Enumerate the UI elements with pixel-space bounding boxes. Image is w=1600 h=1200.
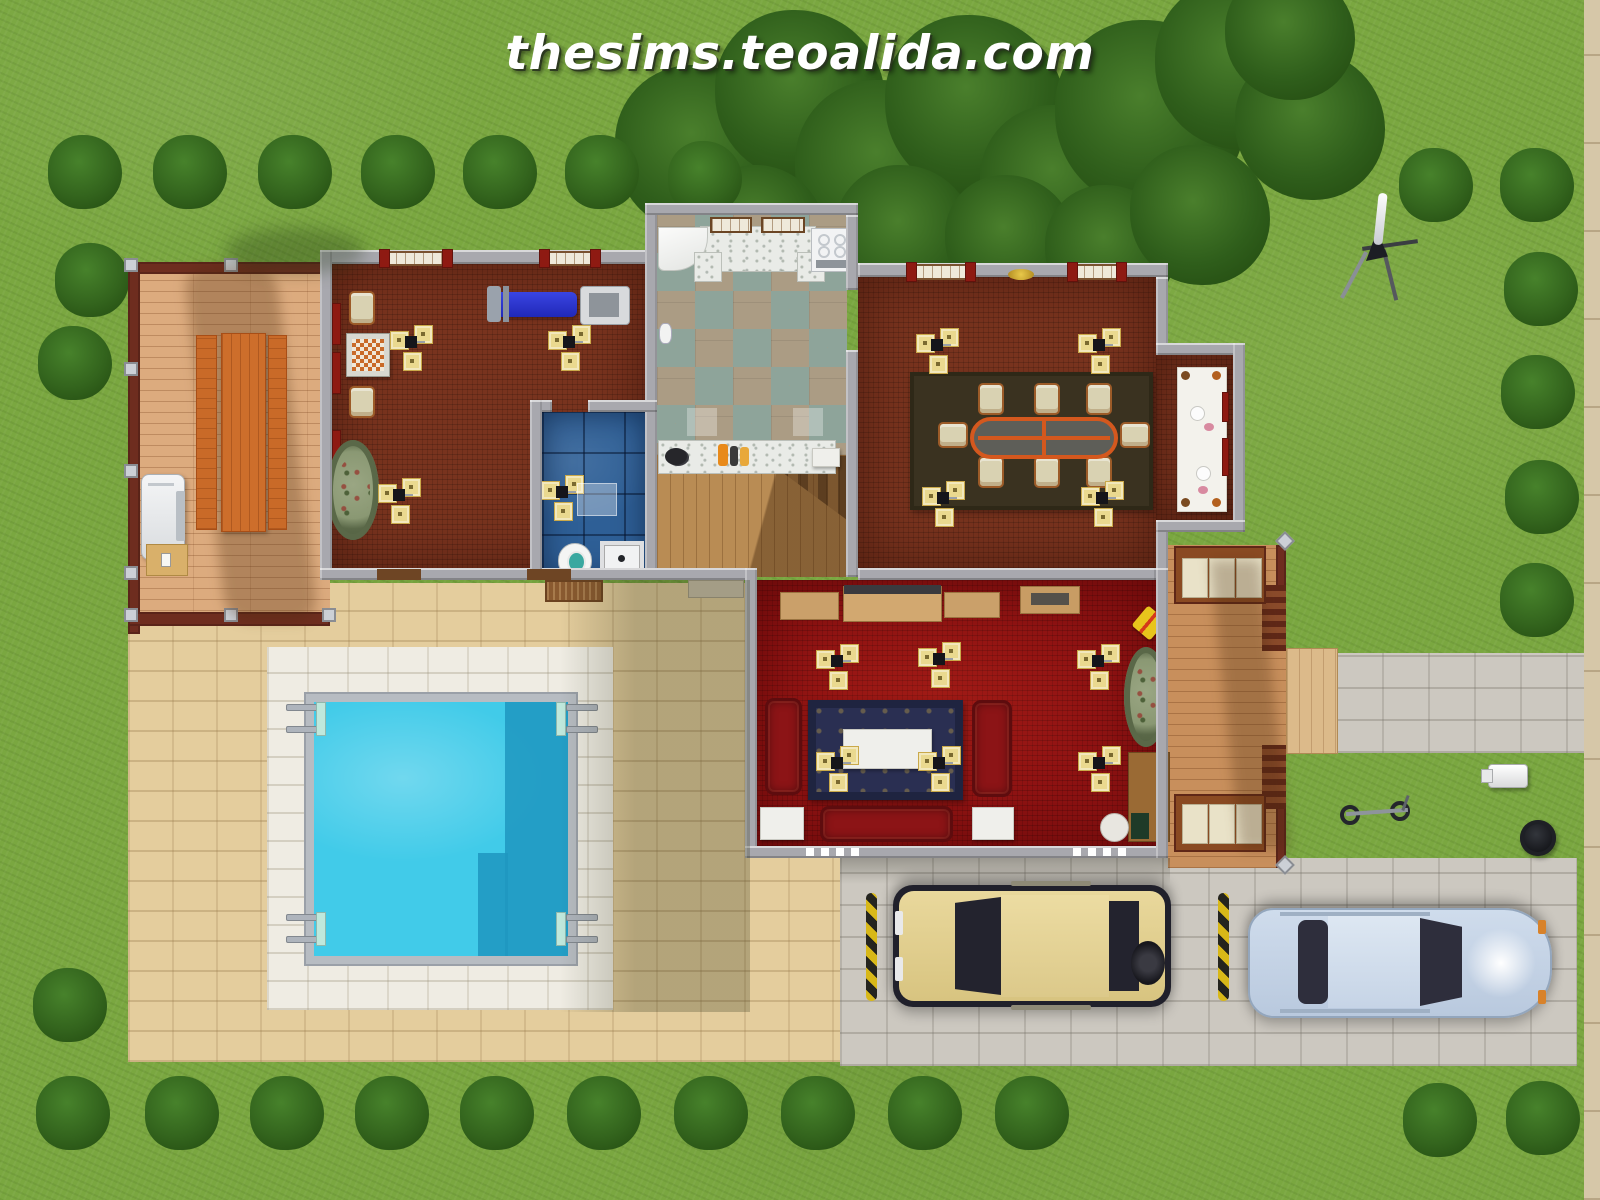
sofa[interactable]	[820, 806, 953, 842]
end-table[interactable]	[972, 807, 1014, 840]
curtain	[379, 249, 390, 268]
grill-side-table[interactable]	[146, 544, 188, 576]
deck-post-cap	[124, 258, 138, 272]
door-threshold[interactable]	[1073, 848, 1130, 856]
door-mat	[545, 580, 603, 602]
bush	[463, 135, 537, 209]
sideboard[interactable]	[780, 592, 839, 620]
oval-rug[interactable]	[327, 440, 379, 540]
bush	[355, 1076, 429, 1150]
ceiling-lamp-cluster[interactable]	[378, 478, 422, 522]
bush	[567, 1076, 641, 1150]
trash-can[interactable]	[1520, 820, 1556, 856]
window-light	[687, 408, 717, 436]
bush	[1504, 252, 1578, 326]
curtain	[590, 249, 601, 268]
dining-chair[interactable]	[1120, 422, 1150, 448]
bathroom-wall	[588, 400, 657, 412]
stool[interactable]	[1100, 813, 1129, 842]
window	[710, 217, 752, 233]
sedan-windshield	[1420, 918, 1462, 1006]
wall	[1156, 520, 1245, 532]
footpath	[1336, 653, 1584, 753]
window	[761, 217, 805, 233]
spare-tire	[1131, 941, 1165, 985]
curtain	[906, 262, 917, 282]
ceiling-lamp-cluster[interactable]	[816, 644, 860, 688]
bush	[1403, 1083, 1477, 1157]
chair[interactable]	[349, 291, 375, 325]
door-threshold[interactable]	[806, 848, 863, 856]
door-threshold[interactable]	[688, 580, 744, 598]
deck-post-cap	[124, 608, 138, 622]
ceiling-lamp-cluster[interactable]	[1081, 481, 1125, 525]
bicycle[interactable]	[1338, 793, 1426, 827]
ceiling-lamp-cluster[interactable]	[548, 325, 592, 369]
wall-sink[interactable]	[659, 323, 672, 344]
bush	[55, 243, 129, 317]
sofa[interactable]	[972, 700, 1012, 797]
window-light	[793, 408, 823, 436]
ceiling-lamp-cluster[interactable]	[916, 328, 960, 372]
wall	[320, 250, 332, 580]
deck-post-cap	[124, 362, 138, 376]
wall	[645, 203, 657, 577]
parking-stopper	[1218, 893, 1229, 1001]
sofa[interactable]	[765, 698, 802, 795]
bottles[interactable]	[730, 446, 738, 466]
porch-bench[interactable]	[1174, 794, 1266, 852]
window	[545, 251, 595, 266]
buffet-drape	[1222, 392, 1229, 422]
wall	[846, 350, 858, 577]
bush	[33, 968, 107, 1042]
pool-ladder[interactable]	[566, 704, 598, 711]
lot-overview: thesims.teoalida.com	[0, 0, 1600, 1200]
tv-cabinet[interactable]	[1020, 586, 1080, 614]
mailbox[interactable]	[1488, 764, 1528, 788]
wall	[1233, 343, 1245, 532]
swimming-pool[interactable]	[306, 694, 576, 964]
bush	[1500, 563, 1574, 637]
suv-roof	[1001, 895, 1109, 997]
picnic-table[interactable]	[221, 333, 266, 532]
treadmill[interactable]	[580, 286, 630, 325]
pool-water	[314, 702, 568, 956]
window	[912, 264, 970, 280]
buffet-drape	[1222, 438, 1229, 476]
deck-post-cap	[322, 608, 336, 622]
bush	[36, 1076, 110, 1150]
window	[1073, 264, 1121, 280]
bush	[1501, 355, 1575, 429]
bush	[995, 1076, 1069, 1150]
sedan-roof	[1328, 916, 1420, 1008]
bathroom-wall	[530, 400, 542, 577]
shelf[interactable]	[944, 592, 1000, 618]
bottles[interactable]	[740, 447, 749, 466]
ceiling-lamp-cluster[interactable]	[918, 746, 962, 790]
ceiling-lamp-cluster[interactable]	[922, 481, 966, 525]
exercise-bench[interactable]	[495, 292, 577, 317]
bush	[38, 326, 112, 400]
bush	[1505, 460, 1579, 534]
bush	[250, 1076, 324, 1150]
wall	[858, 568, 1156, 580]
pool-ladder[interactable]	[566, 914, 598, 921]
dining-chair[interactable]	[1034, 383, 1060, 415]
end-table[interactable]	[760, 807, 804, 840]
yellow-suv[interactable]	[893, 885, 1171, 1007]
wall-ornament	[1008, 269, 1034, 280]
bush	[1500, 148, 1574, 222]
buffet-table[interactable]	[1177, 367, 1227, 512]
pool-ladder[interactable]	[286, 914, 318, 921]
door-frame[interactable]	[332, 352, 341, 394]
pool-ladder[interactable]	[286, 726, 318, 733]
dining-chair[interactable]	[1086, 383, 1112, 415]
ceiling-lamp-cluster[interactable]	[1078, 746, 1122, 790]
dining-chair[interactable]	[978, 456, 1004, 488]
parking-stopper	[866, 893, 877, 1001]
dining-chair[interactable]	[1034, 456, 1060, 488]
kitchen-counter-piece[interactable]	[694, 252, 722, 282]
chair[interactable]	[349, 386, 375, 418]
ceiling-lamp-cluster[interactable]	[918, 642, 962, 686]
porch-ramp	[1286, 648, 1338, 754]
curtain	[1116, 262, 1127, 282]
window-sill	[527, 569, 571, 580]
bush	[48, 135, 122, 209]
bush	[888, 1076, 962, 1150]
ceiling-lamp-cluster[interactable]	[1078, 328, 1122, 372]
curtain	[442, 249, 453, 268]
bush	[145, 1076, 219, 1150]
bush	[781, 1076, 855, 1150]
bush	[153, 135, 227, 209]
deck-post-cap	[124, 566, 138, 580]
suv-windshield	[955, 897, 1001, 995]
dining-chair[interactable]	[978, 383, 1004, 415]
chess-table[interactable]	[346, 333, 390, 377]
pool-ladder[interactable]	[286, 704, 318, 711]
pool-ladder-step	[316, 912, 326, 946]
curtain	[965, 262, 976, 282]
sedan-hood-shine	[1466, 928, 1536, 998]
site-watermark: thesims.teoalida.com	[0, 26, 1600, 81]
deck-post-cap	[224, 258, 238, 272]
ceiling-lamp-cluster[interactable]	[1077, 644, 1121, 688]
pool-ladder[interactable]	[566, 936, 598, 943]
porch-bench[interactable]	[1174, 546, 1266, 604]
deck-post-cap	[224, 608, 238, 622]
frying-pan[interactable]	[665, 448, 687, 465]
pool-ladder-step	[556, 702, 566, 736]
sidewalk	[1584, 0, 1600, 1200]
bush	[1506, 1081, 1580, 1155]
blue-sedan[interactable]	[1248, 908, 1552, 1018]
bush	[565, 135, 639, 209]
pool-ladder-step	[556, 912, 566, 946]
bush	[258, 135, 332, 209]
wall	[645, 203, 858, 215]
bathroom-window-light	[577, 483, 617, 516]
window	[385, 251, 447, 266]
dining-chair[interactable]	[938, 422, 968, 448]
picnic-bench[interactable]	[268, 335, 287, 530]
bottles[interactable]	[718, 444, 728, 466]
pool-ladder-step	[316, 702, 326, 736]
dining-table[interactable]	[970, 417, 1118, 459]
ceiling-lamp-cluster[interactable]	[816, 746, 860, 790]
wall	[1156, 568, 1168, 858]
wall	[1156, 343, 1245, 355]
window-sill	[377, 569, 421, 580]
door-frame[interactable]	[332, 303, 341, 345]
ceiling-lamp-cluster[interactable]	[390, 325, 434, 369]
piano[interactable]	[843, 586, 942, 622]
bush	[460, 1076, 534, 1150]
curtain	[539, 249, 550, 268]
wall	[320, 250, 657, 264]
bush	[361, 135, 435, 209]
picnic-bench[interactable]	[196, 335, 217, 530]
pool-ladder[interactable]	[566, 726, 598, 733]
telescope[interactable]	[1342, 205, 1428, 305]
wall	[846, 215, 858, 290]
bush	[674, 1076, 748, 1150]
wall	[745, 568, 757, 858]
sedan-rear-window	[1298, 920, 1328, 1004]
curtain	[1067, 262, 1078, 282]
deck-post-cap	[124, 464, 138, 478]
counter-appliance[interactable]	[812, 448, 840, 467]
pool-ladder[interactable]	[286, 936, 318, 943]
